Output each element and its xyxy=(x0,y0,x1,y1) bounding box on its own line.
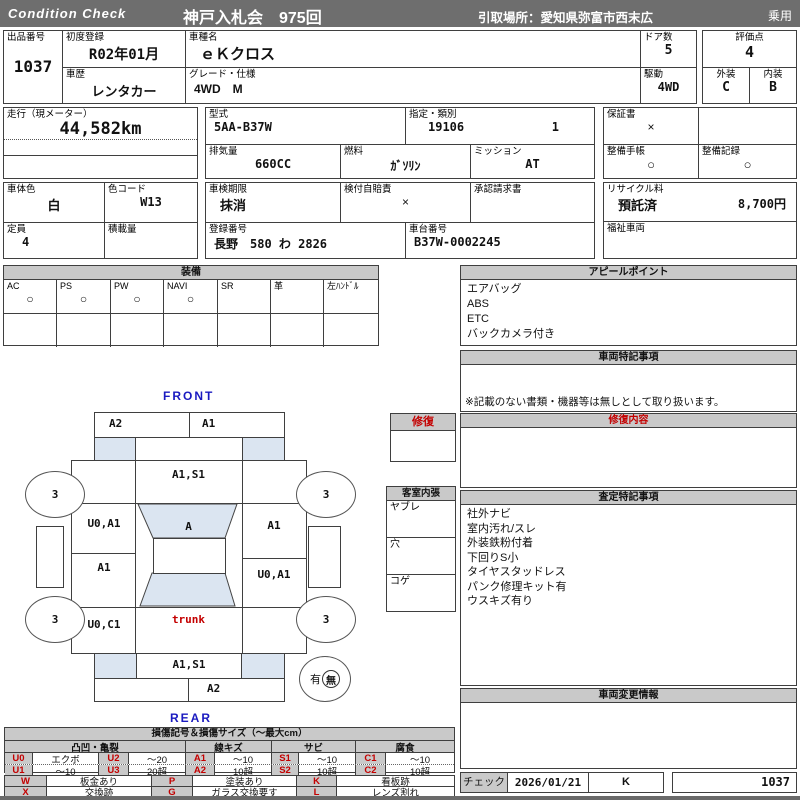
front-left-damage: U0,A1 xyxy=(73,517,135,530)
spare-no-circled: 無 xyxy=(322,670,340,688)
recycle-box: リサイクル料 預託済 8,700円 福祉車両 xyxy=(603,182,797,259)
interior-label: 内装 xyxy=(750,68,796,80)
side-right-damage: U0,A1 xyxy=(243,568,305,581)
displacement-value: 660CC xyxy=(206,157,340,171)
transmission-value: AT xyxy=(471,157,594,171)
doors-label: ドア数 xyxy=(641,31,696,43)
roof xyxy=(153,538,226,574)
legend-desc: 看板跡 xyxy=(337,776,454,786)
vehicle-notes-note: ※記載のない書類・機器等は無しとして取り扱います。 xyxy=(465,394,724,409)
repair-small-box: 修復 xyxy=(390,413,456,462)
model-name-value: ｅＫクロス xyxy=(186,43,640,64)
changes-panel: 車両変更情報 xyxy=(460,688,797,769)
exterior-label: 外装 xyxy=(703,68,749,80)
appeal-panel: アピールポイント エアバッグ ABS ETC バックカメラ付き xyxy=(460,265,797,346)
fuel-label: 燃料 xyxy=(341,145,470,157)
history-value: レンタカー xyxy=(63,81,185,100)
legend-desc: 〜20 xyxy=(129,753,186,764)
registration-number-label: 登録番号 xyxy=(206,223,405,235)
wheel-mark: 3 xyxy=(52,613,59,626)
repair-small-title: 修復 xyxy=(391,414,455,431)
legend-group-corrosion: 腐食 xyxy=(356,741,454,752)
first-registration-label: 初度登録 xyxy=(63,31,185,43)
grade-value: 4WD M xyxy=(186,80,640,97)
score-value: 4 xyxy=(703,43,796,61)
assessment-item: 外装鉄粉付着 xyxy=(461,536,796,551)
brand-title: Condition Check xyxy=(8,6,126,21)
legend-desc: 板金あり xyxy=(47,776,152,786)
equip-label-ps: PS xyxy=(57,280,110,292)
inspection-value: 抹消 xyxy=(206,195,340,214)
warranty-label: 保証書 xyxy=(604,108,698,120)
drive-value: 4WD xyxy=(641,80,696,94)
insurance-label: 検付自賠責 xyxy=(341,183,470,195)
exterior-box: 外装 C xyxy=(702,67,750,104)
vehicle-notes-title: 車両特記事項 xyxy=(461,351,796,365)
history-label: 車歴 xyxy=(63,68,185,80)
legend-desc: エクボ xyxy=(33,753,99,764)
model-name-label: 車種名 xyxy=(186,31,640,43)
legend-group-rust: サビ xyxy=(272,741,356,752)
score-label: 評価点 xyxy=(703,31,796,43)
equip-mark-navi: ○ xyxy=(164,292,217,306)
assessment-panel: 査定特記事項 社外ナビ 室内汚れ/スレ 外装鉄粉付着 下回りS小 タイヤスタッド… xyxy=(460,490,797,686)
interior-trim-item: 穴 xyxy=(387,538,455,550)
repair-code-table: W 板金あり P 塗装あり K 看板跡 X 交換跡 G ガラス交換要す L レン… xyxy=(4,775,455,797)
side-left-damage: A1 xyxy=(73,561,135,574)
registration-number-value: 長野 580 わ 2826 xyxy=(206,235,405,252)
lot-number-box: 出品番号 1037 xyxy=(3,30,63,104)
first-registration-box: 初度登録 R02年01月 xyxy=(62,30,186,68)
chassis-number-label: 車台番号 xyxy=(406,223,594,235)
legend-group-dent: 凸凹・亀裂 xyxy=(5,741,186,752)
color-code-value: W13 xyxy=(105,195,197,209)
lot-footer-box: 1037 xyxy=(672,772,797,793)
assessment-item: パンク修理キット有 xyxy=(461,580,796,595)
equipment-title: 装備 xyxy=(4,266,378,280)
inspection-label: 車検期限 xyxy=(206,183,340,195)
appeal-item: バックカメラ付き xyxy=(461,327,796,342)
displacement-label: 排気量 xyxy=(206,145,340,157)
bottom-bar xyxy=(0,796,800,800)
auction-title: 神戸入札会 975回 xyxy=(183,4,322,28)
body-color-label: 車体色 xyxy=(4,183,104,195)
interior-value: B xyxy=(750,80,796,95)
assessment-item: ウスキズ有り xyxy=(461,594,796,609)
front-right-damage: A1 xyxy=(243,519,305,532)
spare-yes-label: 有 xyxy=(310,671,321,687)
check-inspector: K xyxy=(589,773,663,792)
check-label: チェック xyxy=(461,773,508,792)
mileage-value: 44,582km xyxy=(4,119,197,139)
equipment-table: 装備 AC○ PS○ PW○ NAVI○ SR 革 左ﾊﾝﾄﾞﾙ xyxy=(3,265,379,346)
capacity-value: 4 xyxy=(4,235,104,249)
class-value-2: 1 xyxy=(552,120,559,134)
check-date: 2026/01/21 xyxy=(508,773,589,792)
docs-box: 保証書 × 整備手帳 ○ 整備記録 ○ xyxy=(603,107,797,179)
transmission-label: ミッション xyxy=(471,145,594,157)
fuel-value: ｶﾞｿﾘﾝ xyxy=(341,157,470,174)
model-name-box: 車種名 ｅＫクロス xyxy=(185,30,641,68)
legend-desc: 〜10 xyxy=(215,753,272,764)
wheel-mark: 3 xyxy=(52,488,59,501)
legend-desc: 〜10 xyxy=(299,753,356,764)
exterior-value: C xyxy=(703,80,749,95)
appeal-item: ETC xyxy=(461,312,796,327)
rear-window-shape xyxy=(140,573,235,606)
score-box: 評価点 4 xyxy=(702,30,797,68)
grade-label: グレード・仕様 xyxy=(186,68,640,80)
interior-trim-title: 客室内張 xyxy=(387,487,455,501)
assessment-item: 室内汚れ/スレ xyxy=(461,522,796,537)
diagram-front-label: FRONT xyxy=(163,389,214,403)
hood-damage: A1,S1 xyxy=(135,468,242,481)
warranty-value: × xyxy=(604,120,698,134)
legend-code: W xyxy=(5,776,47,786)
registration-box: 車検期限 抹消 検付自賠責 × 承認請求書 登録番号 長野 580 わ 2826… xyxy=(205,182,595,259)
legend-code: C1 xyxy=(356,753,386,764)
capacity-label: 定員 xyxy=(4,223,104,235)
maintenance-record-label: 整備記録 xyxy=(699,145,796,157)
vehicle-notes-panel: 車両特記事項 ※記載のない書類・機器等は無しとして取り扱います。 xyxy=(460,350,797,412)
legend-code: U2 xyxy=(99,753,129,764)
spare-tire-indicator: 有 無 xyxy=(299,656,351,702)
class-label: 指定・類別 xyxy=(406,108,594,120)
class-value-1: 19106 xyxy=(428,120,464,134)
appeal-title: アピールポイント xyxy=(461,266,796,280)
lot-number-label: 出品番号 xyxy=(4,31,62,43)
interior-trim-item: ヤブレ xyxy=(387,501,455,513)
equip-mark-pw: ○ xyxy=(111,292,163,306)
top-bar: Condition Check 神戸入札会 975回 引取場所：愛知県弥富市西末… xyxy=(0,0,800,27)
changes-title: 車両変更情報 xyxy=(461,689,796,703)
equip-label-pw: PW xyxy=(111,280,163,292)
grade-box: グレード・仕様 4WD M xyxy=(185,67,641,104)
legend-code: P xyxy=(152,776,193,786)
drive-label: 駆動 xyxy=(641,68,696,80)
maintenance-record-value: ○ xyxy=(699,157,796,172)
windshield-damage: A xyxy=(135,520,242,533)
legend-group-scratch: 線キズ xyxy=(186,741,272,752)
equip-label-leather: 革 xyxy=(271,280,323,292)
equip-label-navi: NAVI xyxy=(164,280,217,292)
load-label: 積載量 xyxy=(105,223,197,235)
legend-code: A1 xyxy=(186,753,215,764)
appeal-item: エアバッグ xyxy=(461,282,796,297)
interior-trim-box: 客室内張 ヤブレ 穴 コゲ xyxy=(386,486,456,612)
assessment-item: タイヤスタッドレス xyxy=(461,565,796,580)
damage-legend-table: 損傷記号＆損傷サイズ（〜最大cm） 凸凹・亀裂 線キズ サビ 腐食 U0 エクボ… xyxy=(4,727,455,773)
interior-trim-item: コゲ xyxy=(387,575,455,587)
welfare-label: 福祉車両 xyxy=(604,222,796,234)
legend-code: U0 xyxy=(5,753,33,764)
model-code-value: 5AA-B37W xyxy=(206,120,405,134)
approval-label: 承認請求書 xyxy=(471,183,594,195)
equip-label-ac: AC xyxy=(4,280,56,292)
rear-left-damage: U0,C1 xyxy=(73,618,135,631)
check-row: チェック 2026/01/21 K xyxy=(460,772,664,793)
trunk-label: trunk xyxy=(135,613,242,626)
lot-number-value: 1037 xyxy=(4,57,62,76)
recycle-label: リサイクル料 xyxy=(604,183,796,195)
legend-code: S1 xyxy=(272,753,299,764)
mileage-box: 走行（現メーター） 44,582km xyxy=(3,107,198,179)
color-code-label: 色コード xyxy=(105,183,197,195)
diagram-rear-label: REAR xyxy=(170,711,212,725)
assessment-item: 社外ナビ xyxy=(461,507,796,522)
maintenance-book-value: ○ xyxy=(604,157,698,172)
interior-box: 内装 B xyxy=(749,67,797,104)
repair-panel: 修復内容 xyxy=(460,413,797,488)
model-code-label: 型式 xyxy=(206,108,405,120)
first-registration-value: R02年01月 xyxy=(63,44,185,64)
vehicle-category: 乗用 xyxy=(768,7,792,24)
assessment-title: 査定特記事項 xyxy=(461,491,796,505)
legend-code: K xyxy=(297,776,337,786)
equip-label-sr: SR xyxy=(218,280,270,292)
repair-title: 修復内容 xyxy=(461,414,796,428)
body-color-value: 白 xyxy=(4,195,104,214)
appeal-item: ABS xyxy=(461,297,796,312)
assessment-item: 下回りS小 xyxy=(461,551,796,566)
pickup-location: 引取場所：愛知県弥富市西末広 xyxy=(478,7,653,26)
recycle-fee: 8,700円 xyxy=(738,195,786,214)
lot-footer-value: 1037 xyxy=(673,773,796,792)
equip-label-lhd: 左ﾊﾝﾄﾞﾙ xyxy=(324,280,378,292)
legend-desc: 〜10 xyxy=(386,753,454,764)
spec-box: 型式 5AA-B37W 指定・類別 19106 1 排気量 660CC 燃料 ｶ… xyxy=(205,107,595,179)
recycle-status: 預託済 xyxy=(618,195,657,214)
history-box: 車歴 レンタカー xyxy=(62,67,186,104)
equip-mark-ac: ○ xyxy=(4,292,56,306)
equip-mark-ps: ○ xyxy=(57,292,110,306)
color-box: 車体色 白 色コード W13 定員 4 積載量 xyxy=(3,182,198,259)
doors-value: 5 xyxy=(641,43,696,58)
insurance-value: × xyxy=(341,195,470,209)
doors-box: ドア数 5 xyxy=(640,30,697,68)
drive-box: 駆動 4WD xyxy=(640,67,697,104)
maintenance-book-label: 整備手帳 xyxy=(604,145,698,157)
legend-desc: 塗装あり xyxy=(193,776,297,786)
chassis-number-value: B37W-0002245 xyxy=(406,235,594,249)
